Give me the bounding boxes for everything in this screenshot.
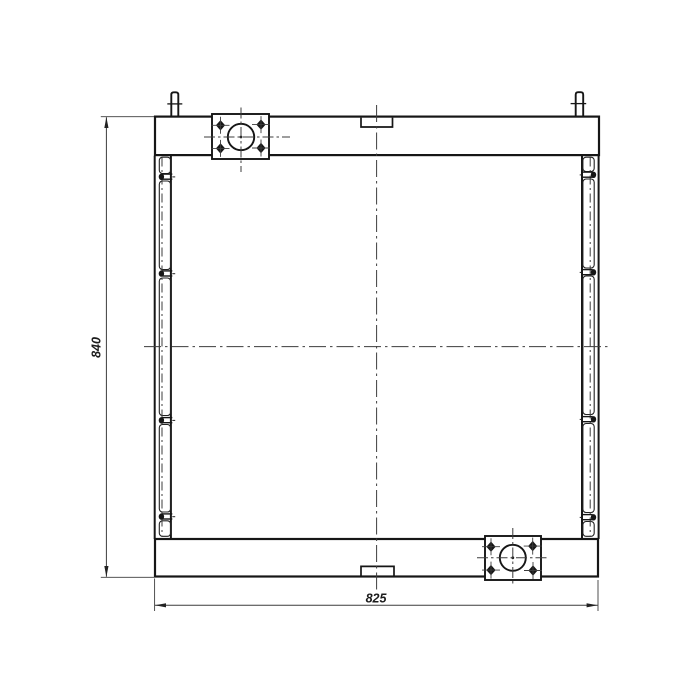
svg-text:825: 825 xyxy=(366,592,388,606)
svg-text:840: 840 xyxy=(90,337,104,358)
